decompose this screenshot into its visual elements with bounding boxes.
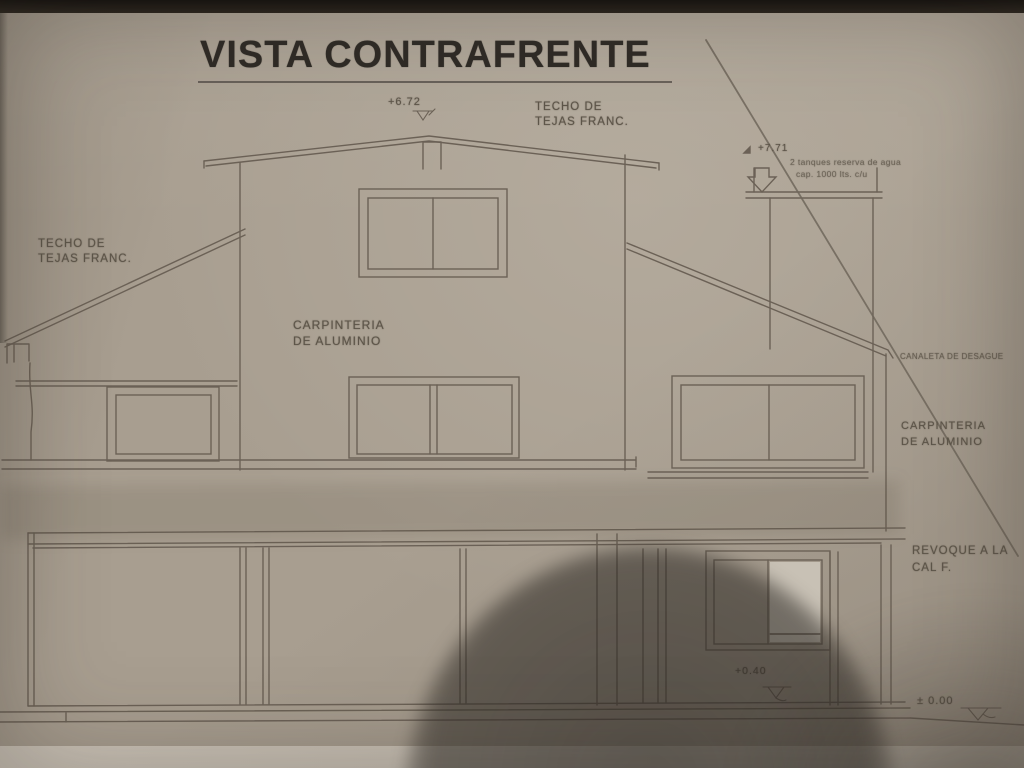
photo-of-architectural-plan: VISTA CONTRAFRENTE +6.72 TECHO DETEJAS F… — [0, 0, 1024, 768]
photo-vignette — [0, 0, 1024, 768]
